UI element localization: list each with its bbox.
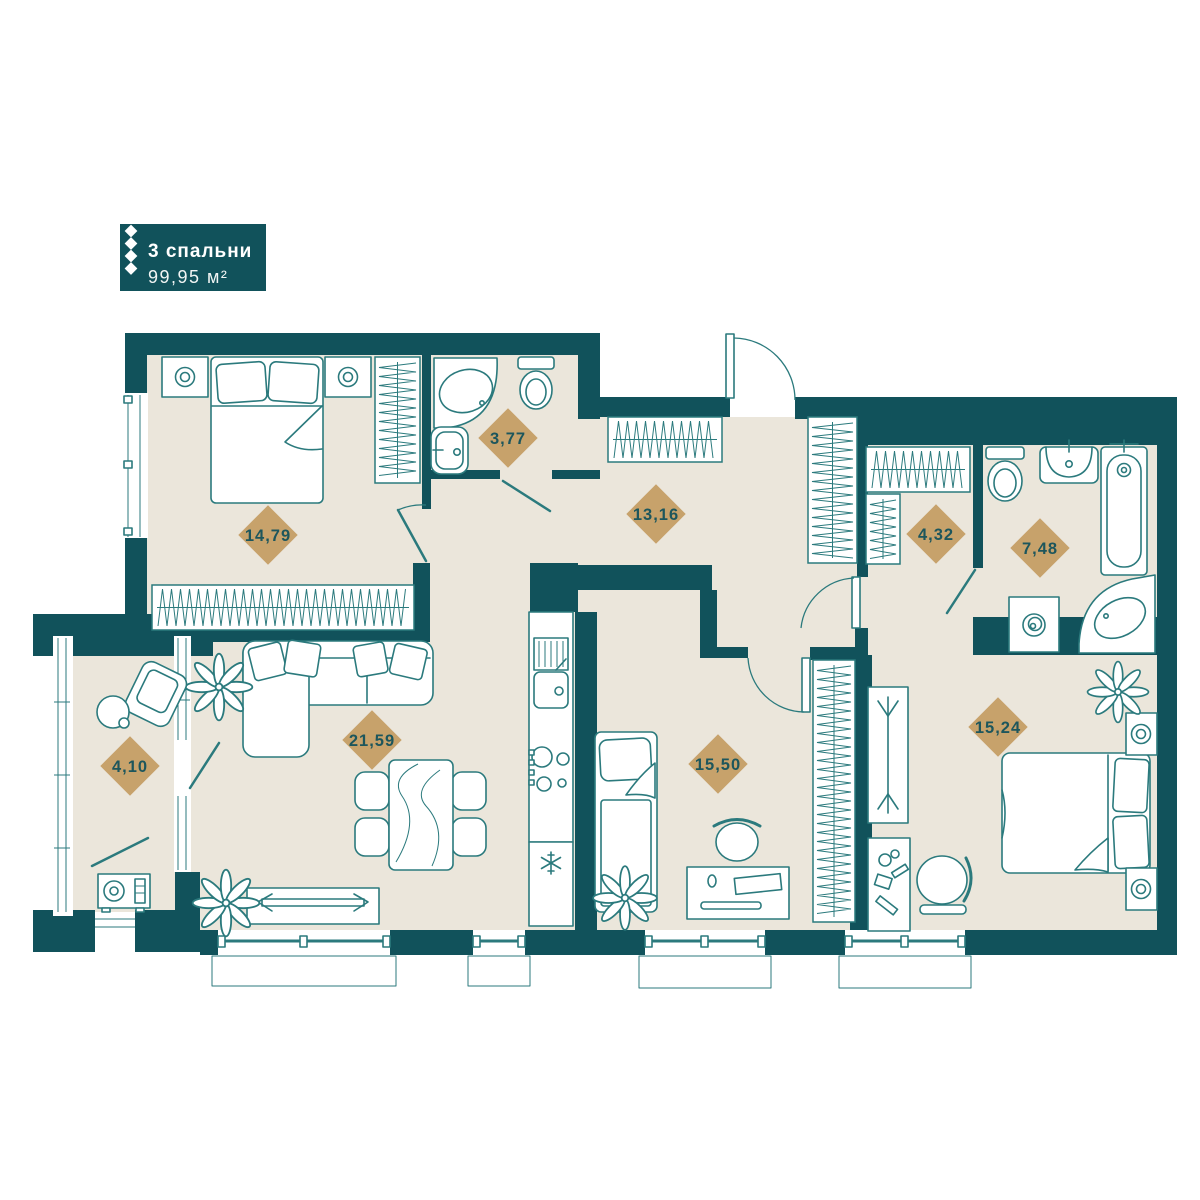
living-room-window-2: [468, 930, 530, 986]
bedroom1-window: [121, 393, 148, 538]
floor-plan-page: 14,793,7713,164,327,484,1021,5915,5015,2…: [0, 0, 1200, 1200]
wardrobe: [608, 417, 722, 462]
double-bed: [211, 357, 323, 503]
svg-text:7,48: 7,48: [1022, 540, 1058, 558]
coat-rack: [868, 687, 908, 823]
bathtub: [1101, 440, 1147, 575]
wardrobe: [866, 447, 970, 492]
badge-rooms-label: 3 спальни: [148, 241, 252, 262]
balcony-partition-glazing: [174, 636, 191, 872]
wardrobe: [152, 585, 414, 630]
kitchen-sink: [534, 638, 568, 708]
kitchen-furniture: [529, 612, 573, 926]
nightstand: [1126, 713, 1157, 755]
plant: [1088, 662, 1149, 723]
sink: [1040, 440, 1098, 483]
svg-text:21,59: 21,59: [349, 732, 395, 750]
svg-text:4,32: 4,32: [918, 526, 954, 544]
plan-badge: 3 спальни 99,95 м²: [120, 224, 266, 291]
svg-text:15,50: 15,50: [695, 756, 741, 774]
wardrobe: [808, 417, 857, 563]
nightstand: [162, 357, 208, 397]
ac-unit: [98, 874, 150, 912]
tv-stand: [247, 888, 379, 924]
svg-text:14,79: 14,79: [245, 527, 291, 545]
balcony-bottom-window: [95, 912, 135, 940]
plant: [186, 654, 253, 721]
sink: [431, 427, 468, 474]
living-room-window: [212, 930, 396, 986]
plant: [593, 866, 657, 930]
badge-area-label: 99,95 м²: [148, 267, 228, 287]
dressing-table: [868, 838, 910, 931]
side-table: [97, 696, 129, 728]
floor-plan-drawing: 14,793,7713,164,327,484,1021,5915,5015,2…: [0, 0, 1200, 1200]
plant: [193, 870, 260, 937]
svg-text:13,16: 13,16: [633, 506, 679, 524]
entrance-door: [726, 334, 795, 400]
svg-text:15,24: 15,24: [975, 719, 1021, 737]
wardrobe: [375, 357, 420, 483]
desk: [687, 867, 789, 919]
wardrobe: [813, 660, 855, 922]
svg-text:4,10: 4,10: [112, 758, 148, 776]
fridge: [529, 842, 573, 926]
nightstand: [1126, 868, 1157, 910]
toilet: [518, 357, 554, 409]
washing-machine: [1009, 597, 1059, 652]
svg-text:3,77: 3,77: [490, 430, 526, 448]
balcony-glazing-left: [53, 636, 73, 916]
bedroom3-window: [839, 930, 971, 988]
nightstand: [325, 357, 371, 397]
double-bed: [1002, 753, 1150, 873]
toilet: [986, 447, 1024, 501]
wardrobe: [866, 494, 900, 564]
bedroom2-window: [639, 930, 771, 988]
